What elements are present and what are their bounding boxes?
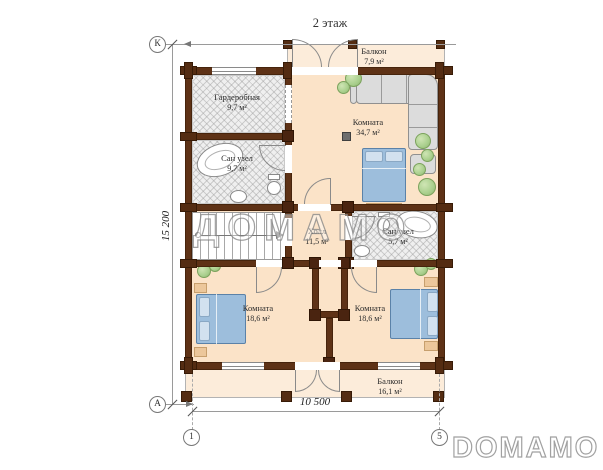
axis-arrow-icon	[184, 41, 191, 47]
sink-icon	[230, 190, 247, 203]
nightstand-icon	[194, 347, 207, 357]
extension-line	[439, 374, 440, 430]
wall-segment	[190, 133, 287, 140]
room-area: 7,9 м²	[361, 57, 386, 67]
nightstand-icon	[424, 341, 438, 351]
wall-segment	[185, 67, 192, 370]
log-joint	[436, 203, 453, 212]
wall-segment	[326, 318, 333, 362]
plant-icon	[415, 133, 431, 149]
sofa-cushion-line	[409, 104, 437, 105]
pillow-icon	[199, 297, 210, 317]
plant-icon	[418, 178, 436, 196]
log-joint	[435, 62, 444, 79]
toilet-icon	[268, 174, 280, 180]
pillow-icon	[427, 292, 438, 312]
axis-marker-1: 1	[183, 429, 200, 446]
nightstand-icon	[194, 283, 207, 293]
window	[212, 67, 256, 75]
dimension-width: 10 500	[265, 396, 365, 408]
room-name: Балкон	[377, 376, 402, 387]
room-area: 9,7 м²	[221, 164, 253, 174]
room-area: 18,6 м²	[243, 314, 273, 324]
pillow-icon	[427, 316, 438, 336]
room-name: Комната	[243, 303, 273, 314]
page-title: 2 этаж	[270, 16, 390, 31]
axis-marker-k: К	[149, 36, 166, 53]
room-label-wardrobe: Гардеробная 9,7 м²	[214, 92, 260, 113]
door-opening	[319, 260, 341, 267]
log-joint	[283, 62, 292, 79]
room-area: 34,7 м²	[353, 128, 383, 138]
axis-line-k	[166, 44, 456, 45]
room-area: 16,1 м²	[377, 387, 402, 397]
log-joint	[184, 62, 193, 79]
sofa-cushion-line	[381, 75, 382, 103]
room-area: 18,6 м²	[355, 314, 385, 324]
column-icon	[342, 132, 351, 141]
door-opening	[292, 67, 358, 75]
door-leaf	[330, 178, 331, 205]
floor-plan: 2 этаж	[0, 0, 603, 470]
room-area: 9,7 м²	[214, 103, 260, 113]
pillow-icon	[365, 151, 383, 162]
log-joint	[436, 259, 453, 268]
room-name: Гардеробная	[214, 92, 260, 103]
log-joint	[435, 357, 444, 374]
log-joint	[338, 309, 350, 321]
room-name: Комната	[355, 303, 385, 314]
sofa-cushion-line	[406, 75, 407, 103]
brand-logo: DOMAMO	[452, 432, 599, 465]
room-name: Комната	[353, 117, 383, 128]
log-joint	[282, 257, 294, 269]
blanket-line	[362, 168, 406, 169]
room-label-master-room: Комната 34,7 м²	[353, 117, 383, 138]
nightstand-icon	[424, 277, 438, 287]
room-label-bedroom-right: Комната 18,6 м²	[355, 303, 385, 324]
room-label-bedroom-left: Комната 18,6 м²	[243, 303, 273, 324]
room-name: Сан узел	[221, 153, 253, 164]
window	[378, 362, 420, 370]
sofa-cushion-line	[409, 127, 437, 128]
room-label-balcony-top: Балкон 7,9 м²	[361, 46, 386, 67]
wall-segment	[438, 67, 445, 370]
door-opening	[256, 260, 282, 267]
door-opening	[351, 260, 377, 267]
log-joint	[180, 259, 197, 268]
log-joint	[282, 130, 294, 142]
room-label-bathroom-left: Сан узел 9,7 м²	[221, 153, 253, 174]
dimension-line-vertical	[172, 44, 173, 405]
room-label-balcony-bottom: Балкон 16,1 м²	[377, 376, 402, 397]
axis-marker-a: А	[149, 396, 166, 413]
extension-line	[192, 374, 193, 430]
window	[222, 362, 264, 370]
door-opening	[295, 362, 340, 370]
pillow-icon	[199, 321, 210, 341]
blanket-line	[216, 294, 217, 344]
door-opening	[285, 85, 292, 123]
axis-marker-5: 5	[431, 429, 448, 446]
watermark: ДОМАМО	[193, 207, 413, 249]
blanket-line	[420, 289, 421, 339]
log-joint	[184, 357, 193, 374]
plant-icon	[413, 163, 426, 176]
dimension-height: 15 200	[160, 196, 172, 256]
log-joint	[180, 132, 197, 141]
door-opening	[285, 145, 292, 173]
log-joint	[309, 309, 321, 321]
room-name: Балкон	[361, 46, 386, 57]
dimension-line-horizontal	[192, 411, 439, 412]
toilet-bowl	[267, 181, 281, 195]
plant-icon	[337, 81, 350, 94]
pillow-icon	[385, 151, 403, 162]
plant-icon	[421, 149, 434, 162]
